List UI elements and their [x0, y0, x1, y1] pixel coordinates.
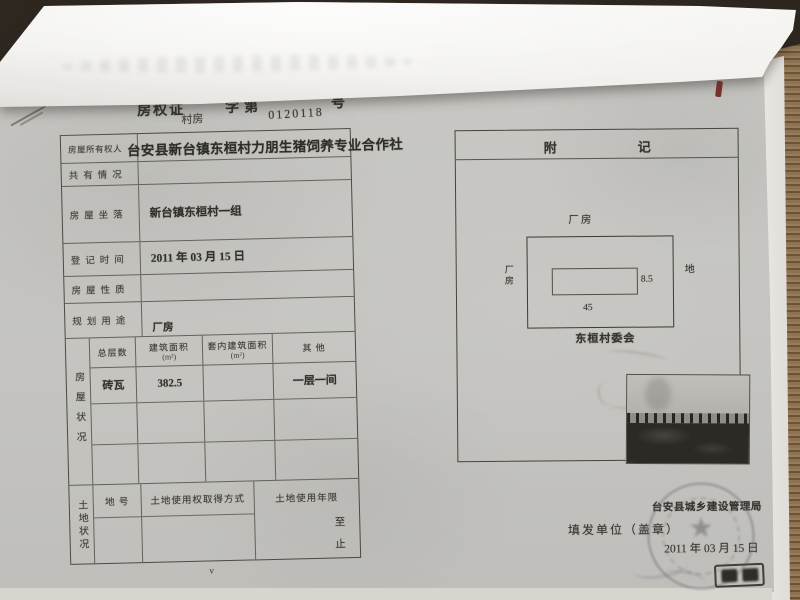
- annex-title-row: 附 记: [456, 129, 738, 160]
- seal-star-icon: ★: [650, 511, 752, 546]
- plot-length-value: 45: [583, 303, 593, 313]
- turned-page-surface: [0, 0, 800, 130]
- annex-box: 附 记 厂房 8.5 45 厂房 地 东桓村委会: [455, 128, 742, 462]
- plot-top-label: 厂房: [568, 212, 593, 227]
- building-photo: [626, 374, 750, 465]
- turned-page: [0, 0, 800, 130]
- certificate-photo: 房权证 村房 字第 0120118 号 台安县新台镇东桓村力朋生猪饲养专业合作社…: [0, 0, 800, 600]
- pencil-scribble: [607, 348, 668, 366]
- photo-smudge: [645, 377, 671, 411]
- bleed-through-smudge: [62, 54, 412, 75]
- rect-verification-stamp: [714, 563, 765, 588]
- photo-window-row: [627, 413, 749, 424]
- plot-building-rect: [552, 268, 638, 296]
- plot-right-label: 地: [685, 260, 695, 275]
- plot-left-label: 厂房: [503, 265, 516, 287]
- photo-building-mass: [627, 423, 749, 465]
- plot-width-value: 8.5: [641, 275, 653, 285]
- plot-owner-label: 东桓村委会: [575, 330, 635, 347]
- annex-title-left: 附: [544, 137, 557, 156]
- annex-title-right: 记: [638, 137, 651, 156]
